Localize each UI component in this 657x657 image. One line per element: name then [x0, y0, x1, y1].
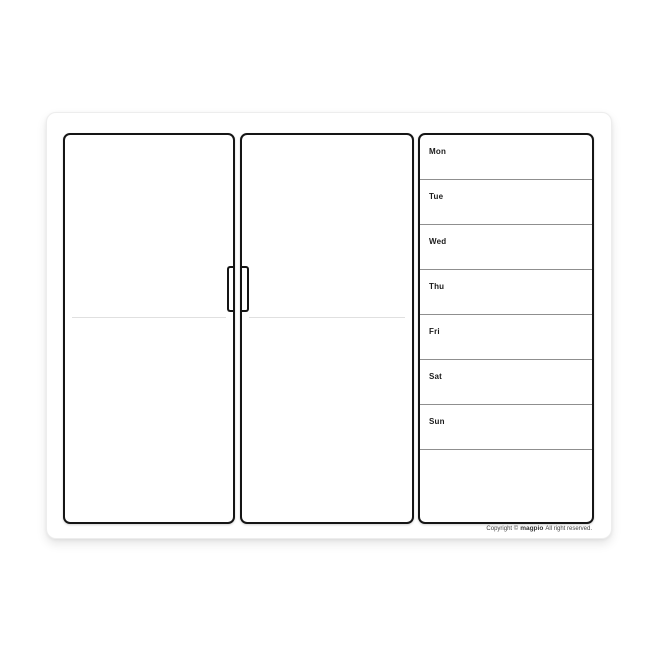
day-row-tue: Tue [420, 180, 592, 225]
page-background: Mon Tue Wed Thu Fri Sat Sun Copyright [0, 0, 657, 657]
day-row-wed: Wed [420, 225, 592, 270]
copyright-line: Copyright ©magpioAll right reserved. [486, 525, 592, 533]
door-handle-right-icon [242, 266, 249, 312]
day-label: Sat [429, 372, 442, 381]
door-crease-line [72, 317, 226, 318]
planner-sheet: Mon Tue Wed Thu Fri Sat Sun Copyright [46, 112, 612, 539]
day-label: Wed [429, 237, 446, 246]
copyright-suffix: All right reserved. [545, 526, 592, 532]
day-row-fri: Fri [420, 315, 592, 360]
day-label: Sun [429, 417, 445, 426]
weekly-panel: Mon Tue Wed Thu Fri Sat Sun [418, 133, 594, 524]
day-label: Mon [429, 147, 446, 156]
day-row-thu: Thu [420, 270, 592, 315]
day-label: Tue [429, 192, 443, 201]
day-label: Fri [429, 327, 440, 336]
door-panel-left [63, 133, 235, 524]
door-panel-right [240, 133, 414, 524]
door-handle-left-icon [227, 266, 234, 312]
day-label: Thu [429, 282, 444, 291]
day-row-mon: Mon [420, 135, 592, 180]
day-row-sat: Sat [420, 360, 592, 405]
notes-area [420, 450, 592, 522]
brand-logo: magpio [520, 525, 543, 532]
day-row-sun: Sun [420, 405, 592, 450]
door-crease-line [249, 317, 405, 318]
copyright-prefix: Copyright © [486, 526, 518, 532]
